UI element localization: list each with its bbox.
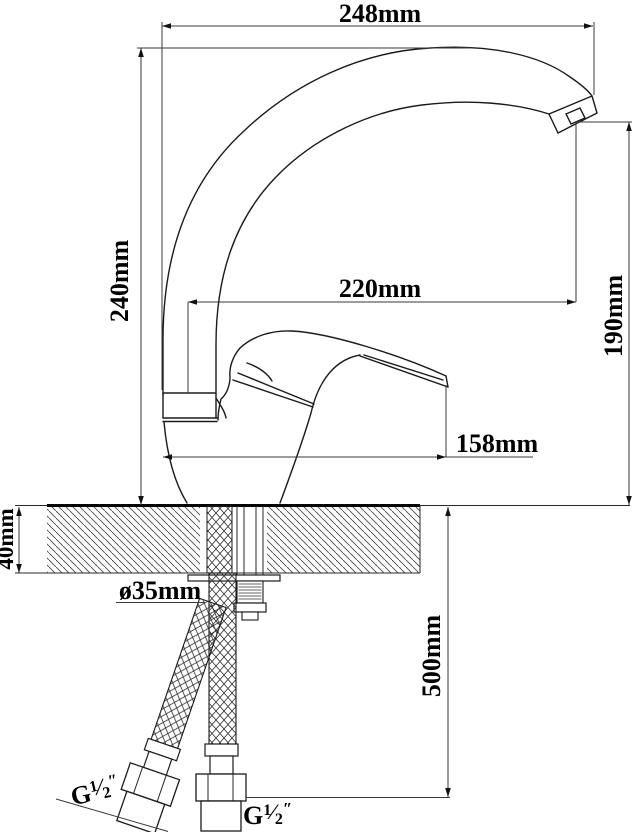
dim-40-label: 40mm — [0, 508, 18, 569]
body-right-curve — [280, 355, 360, 503]
hose-right-collar — [205, 744, 238, 756]
dim-248-label: 248mm — [339, 0, 422, 28]
dim-158-label: 158mm — [456, 429, 539, 458]
spout-outer-curve — [163, 47, 592, 395]
countertop-hatch-left — [47, 506, 200, 573]
hose-right-braid — [209, 573, 236, 746]
hose-right-hex-nut — [196, 774, 246, 801]
dim-35-label: ø35mm — [119, 576, 202, 605]
thread-label-right-text: G1⁄2″ — [243, 799, 292, 830]
countertop — [15, 506, 630, 574]
dim-240-label: 240mm — [105, 240, 134, 323]
dim-counter-thickness: 40mm — [0, 507, 22, 573]
handle-front-edge — [218, 348, 240, 420]
hose-right-neck — [210, 756, 233, 774]
dim-body-length: 158mm — [163, 385, 538, 460]
dim-outlet-height: 190mm — [578, 122, 632, 505]
spout-inner-curve — [216, 102, 549, 392]
stud-tip — [242, 612, 258, 620]
lever-parting-line-lower — [233, 380, 313, 407]
dim-overall-length: 248mm — [162, 0, 594, 390]
hose-right-end-cylinder — [201, 801, 241, 831]
thread-label-right: G1⁄2″ — [243, 799, 292, 830]
thread-label-left-text: G1⁄2″ — [67, 770, 122, 811]
lever-parting-line-upper — [238, 373, 314, 404]
dim-190-label: 190mm — [599, 275, 628, 358]
dim-spout-reach: 220mm — [188, 122, 576, 393]
spout-aerator-cap — [549, 96, 597, 133]
mounting-nut — [234, 603, 266, 612]
dim-220-label: 220mm — [339, 274, 422, 303]
faucet-dimension-drawing: 248mm 240mm 220mm 190mm 158mm 40mm — [0, 0, 633, 832]
base-left-curve — [164, 422, 187, 503]
dim-500-label: 500mm — [417, 615, 446, 698]
countertop-hatch-right — [267, 506, 420, 573]
lever-top-edge — [240, 331, 446, 376]
hose-through-counter — [207, 506, 232, 573]
dim-hole-diameter: ø35mm — [116, 576, 205, 605]
